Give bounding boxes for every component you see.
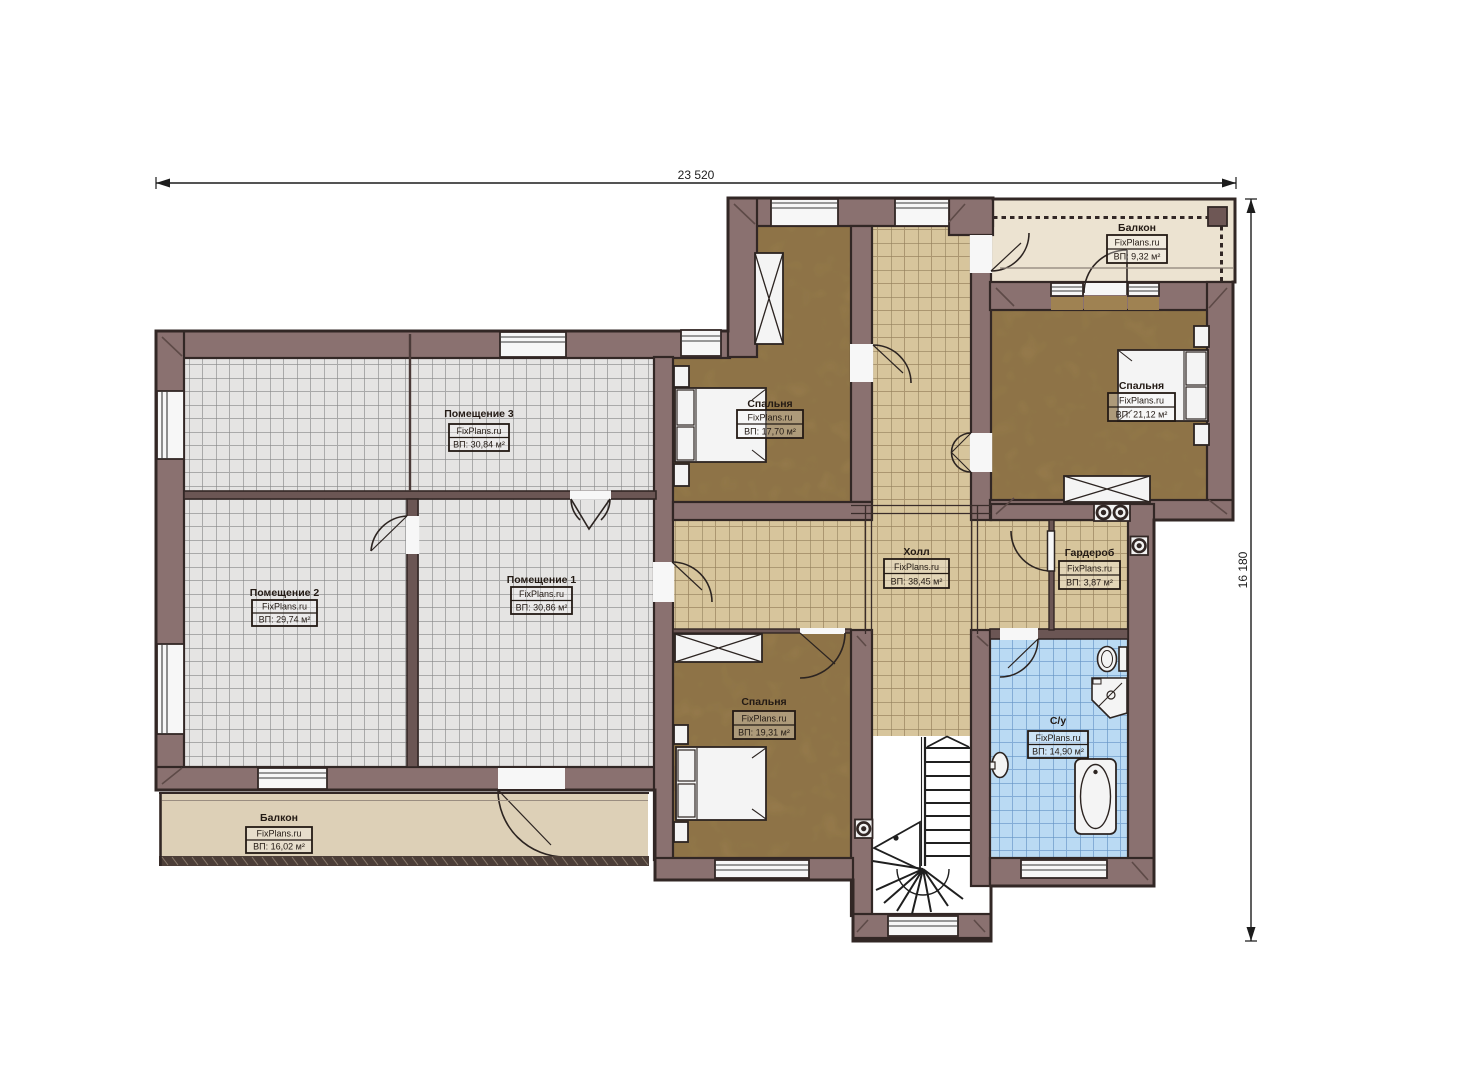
svg-text:Помещение 2: Помещение 2 [250,587,320,599]
svg-text:FixPlans.ru: FixPlans.ru [741,714,786,724]
svg-text:Балкон: Балкон [1118,222,1156,234]
svg-text:Гардероб: Гардероб [1065,547,1115,559]
svg-text:16 180: 16 180 [1236,551,1250,588]
svg-text:ВП: 3,87 м²: ВП: 3,87 м² [1066,578,1113,588]
svg-text:FixPlans.ru: FixPlans.ru [262,602,307,612]
svg-text:ВП: 17,70 м²: ВП: 17,70 м² [744,427,796,437]
svg-text:ВП: 19,31 м²: ВП: 19,31 м² [738,728,790,738]
svg-text:ВП: 38,45 м²: ВП: 38,45 м² [891,577,943,587]
svg-text:ВП: 9,32 м²: ВП: 9,32 м² [1114,252,1161,262]
svg-text:ВП: 16,02 м²: ВП: 16,02 м² [253,842,305,852]
svg-text:Холл: Холл [903,546,929,558]
svg-text:FixPlans.ru: FixPlans.ru [519,589,564,599]
svg-text:Балкон: Балкон [260,812,298,824]
svg-text:ВП: 21,12 м²: ВП: 21,12 м² [1116,410,1168,420]
svg-text:Спальня: Спальня [747,398,792,410]
svg-text:FixPlans.ru: FixPlans.ru [1114,238,1159,248]
svg-text:С/у: С/у [1050,715,1067,727]
svg-text:23 520: 23 520 [678,168,715,182]
svg-text:FixPlans.ru: FixPlans.ru [1119,396,1164,406]
svg-text:Спальня: Спальня [1119,380,1164,392]
svg-text:FixPlans.ru: FixPlans.ru [747,413,792,423]
svg-text:ВП: 30,86 м²: ВП: 30,86 м² [516,603,568,613]
svg-text:ВП: 30,84 м²: ВП: 30,84 м² [453,440,505,450]
svg-text:FixPlans.ru: FixPlans.ru [894,562,939,572]
svg-text:Помещение 1: Помещение 1 [507,574,577,586]
svg-text:ВП: 29,74 м²: ВП: 29,74 м² [259,615,311,625]
svg-text:Помещение 3: Помещение 3 [444,408,514,420]
svg-text:ВП: 14,90 м²: ВП: 14,90 м² [1032,747,1084,757]
svg-text:FixPlans.ru: FixPlans.ru [1035,733,1080,743]
svg-text:FixPlans.ru: FixPlans.ru [256,829,301,839]
svg-text:FixPlans.ru: FixPlans.ru [1067,564,1112,574]
svg-text:FixPlans.ru: FixPlans.ru [456,426,501,436]
svg-text:Спальня: Спальня [741,696,786,708]
